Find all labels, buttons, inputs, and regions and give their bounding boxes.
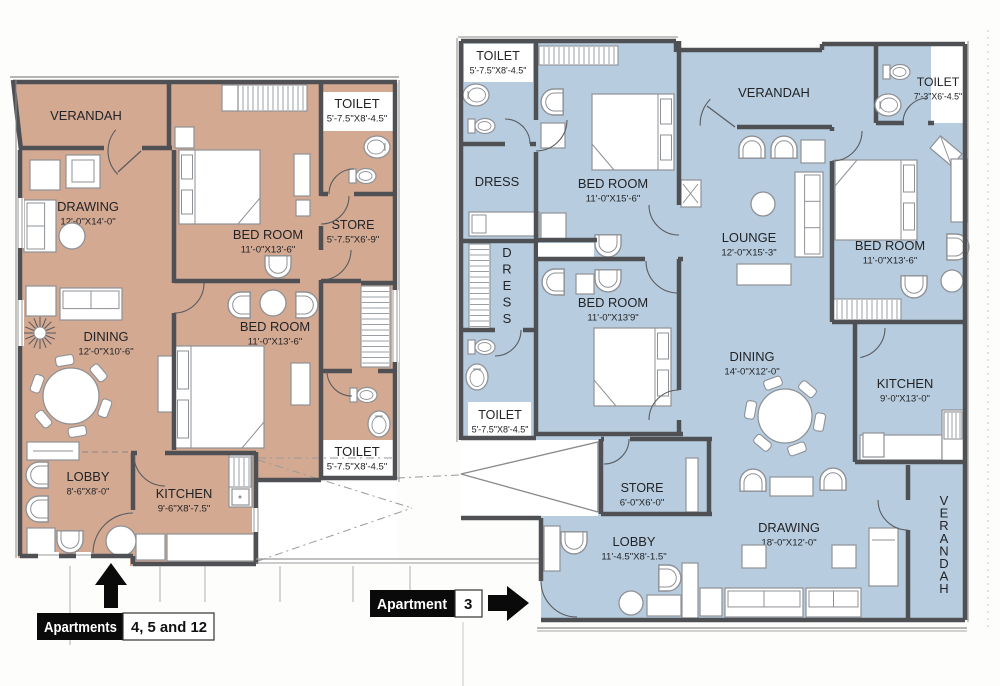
svg-text:11'-0"X13'-6": 11'-0"X13'-6": [241, 245, 296, 256]
svg-text:12'-0"X15'-3": 12'-0"X15'-3": [721, 248, 776, 259]
svg-text:9'-6"X8'-7.5": 9'-6"X8'-7.5": [158, 504, 211, 515]
svg-text:11'-0"X13'-6": 11'-0"X13'-6": [863, 256, 918, 267]
svg-text:S: S: [503, 311, 512, 326]
svg-text:H: H: [939, 581, 948, 596]
svg-text:TOILET: TOILET: [476, 49, 520, 63]
svg-text:TOILET: TOILET: [334, 444, 379, 459]
svg-text:5'-7.5"X8'-4.5": 5'-7.5"X8'-4.5": [472, 425, 529, 435]
svg-text:Apartment: Apartment: [377, 596, 447, 613]
svg-text:LOBBY: LOBBY: [67, 469, 110, 484]
svg-text:DRAWING: DRAWING: [57, 199, 119, 214]
svg-text:5'-7.5"X6'-9": 5'-7.5"X6'-9": [327, 235, 380, 246]
svg-text:S: S: [503, 295, 512, 310]
svg-text:BED ROOM: BED ROOM: [233, 227, 303, 242]
svg-text:14'-0"X12'-0": 14'-0"X12'-0": [724, 367, 779, 378]
svg-text:DRAWING: DRAWING: [758, 520, 820, 535]
svg-text:4, 5 and 12: 4, 5 and 12: [131, 619, 207, 636]
svg-text:11'-0"X15'-6": 11'-0"X15'-6": [586, 194, 641, 205]
svg-text:E: E: [503, 278, 512, 293]
svg-text:11'-0"X13'9": 11'-0"X13'9": [587, 313, 638, 324]
svg-text:12'-0"X10'-6": 12'-0"X10'-6": [78, 347, 133, 358]
svg-text:TOILET: TOILET: [478, 408, 522, 422]
svg-text:DRESS: DRESS: [475, 174, 519, 189]
svg-text:VERANDAH: VERANDAH: [50, 108, 122, 123]
svg-text:DINING: DINING: [83, 329, 128, 344]
svg-text:18'-0"X12'-0": 18'-0"X12'-0": [761, 538, 816, 549]
svg-text:KITCHEN: KITCHEN: [877, 376, 934, 391]
svg-text:TOILET: TOILET: [917, 75, 960, 89]
svg-text:LOBBY: LOBBY: [613, 534, 656, 549]
svg-text:11'-4.5"X8'-1.5": 11'-4.5"X8'-1.5": [601, 552, 666, 563]
svg-text:5'-7.5"X8'-4.5": 5'-7.5"X8'-4.5": [327, 114, 388, 125]
svg-text:Apartments: Apartments: [44, 619, 117, 636]
svg-text:BED ROOM: BED ROOM: [240, 319, 310, 334]
svg-text:LOUNGE: LOUNGE: [722, 230, 777, 245]
svg-text:3: 3: [464, 596, 472, 613]
svg-text:STORE: STORE: [332, 218, 375, 232]
svg-text:TOILET: TOILET: [334, 96, 379, 111]
svg-text:D: D: [502, 245, 511, 260]
svg-text:R: R: [502, 262, 511, 277]
svg-text:STORE: STORE: [621, 481, 664, 495]
svg-text:9'-0"X13'-0": 9'-0"X13'-0": [880, 394, 930, 405]
svg-text:KITCHEN: KITCHEN: [156, 486, 213, 501]
svg-text:BED ROOM: BED ROOM: [578, 295, 648, 310]
svg-text:DINING: DINING: [729, 349, 774, 364]
svg-text:BED ROOM: BED ROOM: [578, 176, 648, 191]
svg-text:5'-7.5"X8'-4.5": 5'-7.5"X8'-4.5": [327, 462, 388, 473]
svg-text:6'-0"X6'-0": 6'-0"X6'-0": [620, 498, 665, 509]
svg-text:7'-3"X6'-4.5": 7'-3"X6'-4.5": [914, 92, 962, 102]
svg-text:5'-7.5"X8'-4.5": 5'-7.5"X8'-4.5": [470, 66, 527, 76]
svg-text:VERANDAH: VERANDAH: [738, 85, 810, 100]
svg-text:8'-6"X8'-0": 8'-6"X8'-0": [67, 487, 110, 497]
